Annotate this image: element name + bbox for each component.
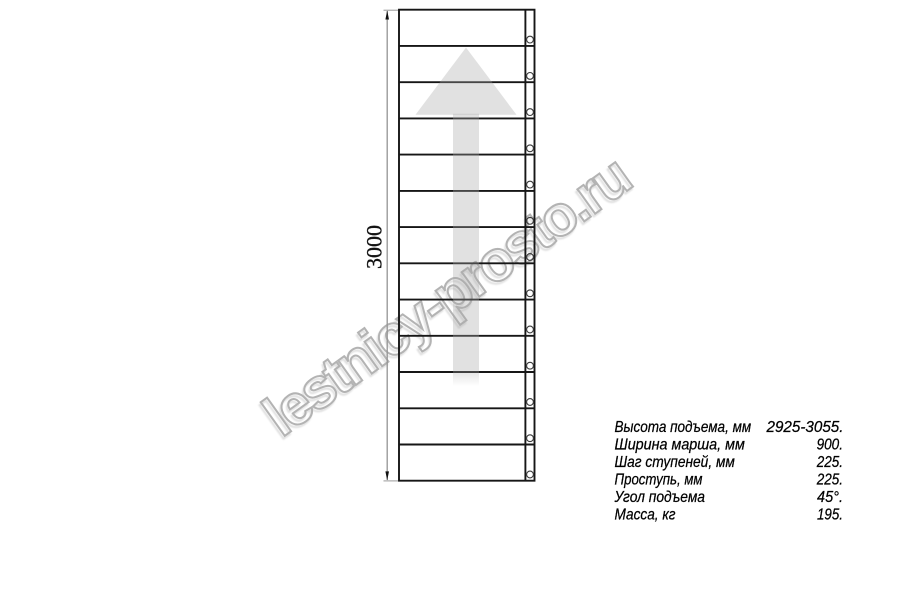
svg-text:Масса, кг: Масса, кг (615, 507, 676, 524)
svg-text:195.: 195. (817, 507, 843, 524)
svg-text:Проступь, мм: Проступь, мм (615, 472, 703, 489)
svg-text:225.: 225. (816, 472, 843, 489)
svg-text:Шаг ступеней, мм: Шаг ступеней, мм (615, 454, 735, 471)
svg-text:3000: 3000 (362, 225, 387, 269)
svg-text:Ширина марша, мм: Ширина марша, мм (615, 437, 745, 454)
svg-text:Высота подъема, мм: Высота подъема, мм (615, 419, 752, 436)
svg-text:2925-3055.: 2925-3055. (766, 419, 844, 436)
svg-text:lestnicy-prosto.ru: lestnicy-prosto.ru (252, 143, 644, 449)
svg-text:45°.: 45°. (817, 489, 843, 506)
svg-text:225.: 225. (816, 454, 843, 471)
svg-text:Угол подъема: Угол подъема (614, 489, 705, 506)
svg-text:900.: 900. (817, 437, 843, 454)
